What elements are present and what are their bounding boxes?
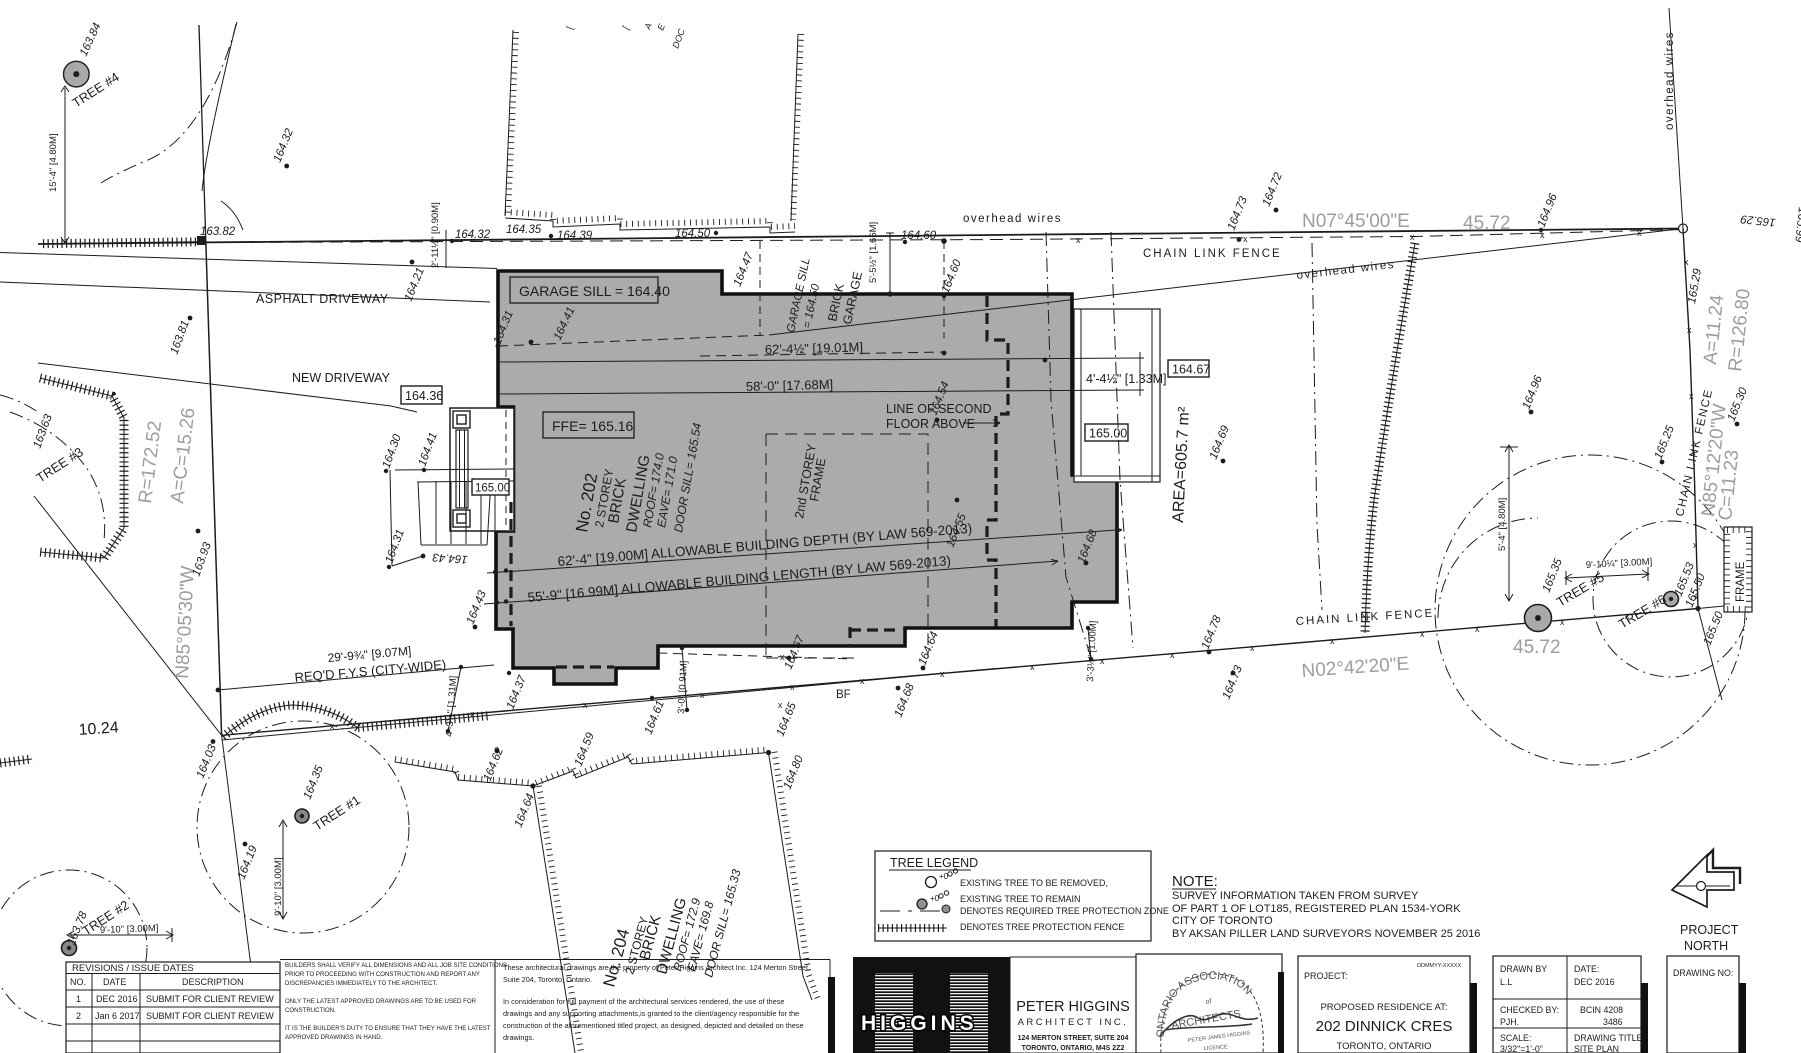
svg-text:DDMMYY-XXXXX: DDMMYY-XXXXX (1417, 963, 1461, 969)
svg-text:TREE LEGEND: TREE LEGEND (890, 856, 978, 870)
svg-text:9'-10" [3.00M]: 9'-10" [3.00M] (100, 923, 159, 936)
svg-text:DRAWING NO:: DRAWING NO: (1673, 968, 1733, 978)
svg-text:x: x (1250, 643, 1255, 653)
svg-text:45.72: 45.72 (1463, 213, 1511, 234)
svg-text:15'-4" [4.80M]: 15'-4" [4.80M] (48, 133, 59, 192)
svg-text:CHECKED BY:: CHECKED BY: (1500, 1005, 1559, 1015)
svg-text:OF PART 1 OF LOT185, REGISTERE: OF PART 1 OF LOT185, REGISTERED PLAN 153… (1172, 903, 1461, 915)
svg-text:45.72: 45.72 (1513, 637, 1561, 658)
svg-text:NO.: NO. (70, 977, 86, 987)
svg-text:164.39: 164.39 (557, 230, 593, 242)
svg-text:DEC 2016: DEC 2016 (1574, 977, 1615, 987)
svg-text:CHAIN LINK FENCE: CHAIN LINK FENCE (1143, 248, 1282, 260)
svg-text:IT IS THE BUILDER'S DUTY TO EN: IT IS THE BUILDER'S DUTY TO ENSURE THAT … (285, 1025, 491, 1032)
svg-text:NORTH: NORTH (1684, 939, 1728, 953)
svg-text:163.82: 163.82 (200, 226, 236, 238)
svg-text:164.67: 164.67 (1172, 363, 1210, 377)
svg-text:x: x (1410, 232, 1415, 242)
svg-text:164.32: 164.32 (455, 229, 491, 241)
svg-text:x: x (1693, 540, 1698, 550)
svg-text:PROJECT: PROJECT (1680, 923, 1739, 937)
svg-text:x: x (1076, 235, 1081, 245)
svg-text:164.50: 164.50 (675, 228, 711, 240)
svg-text:x: x (790, 682, 795, 692)
svg-text:CONSTRUCTION.: CONSTRUCTION. (285, 1007, 336, 1014)
svg-text:DISCREPANCIES IMMEDIATELY TO T: DISCREPANCIES IMMEDIATELY TO THE ARCHITE… (285, 980, 438, 987)
svg-text:PROPOSED RESIDENCE AT:: PROPOSED RESIDENCE AT: (1320, 1002, 1447, 1013)
svg-text:In consideration for full paym: In consideration for full payment of the… (503, 997, 785, 1006)
svg-text:x: x (1475, 624, 1480, 634)
svg-text:These architectural drawings a: These architectural drawings are the pro… (503, 963, 810, 972)
svg-text:x: x (700, 690, 705, 700)
svg-text:x: x (940, 669, 945, 679)
svg-text:3/32"=1'-0": 3/32"=1'-0" (1500, 1044, 1543, 1053)
svg-text:165.00: 165.00 (1089, 427, 1127, 441)
svg-text:FFE= 165.16: FFE= 165.16 (552, 418, 634, 434)
svg-text:EXISTING TREE TO REMAIN: EXISTING TREE TO REMAIN (960, 894, 1081, 904)
svg-text:SUBMIT FOR CLIENT REVIEW: SUBMIT FOR CLIENT REVIEW (146, 1011, 274, 1021)
svg-text:DRAWING TITLE:: DRAWING TITLE: (1574, 1033, 1645, 1043)
svg-text:x: x (583, 700, 588, 710)
svg-text:x: x (1420, 629, 1425, 639)
svg-text:FLOOR ABOVE: FLOOR ABOVE (886, 417, 975, 431)
svg-text:x: x (1637, 228, 1642, 238)
svg-text:202 DINNICK CRES: 202 DINNICK CRES (1316, 1018, 1453, 1035)
svg-text:BF: BF (836, 689, 851, 701)
svg-text:PRIOR TO PROCEEDING WITH CONST: PRIOR TO PROCEEDING WITH CONSTRUCTION AN… (285, 971, 480, 978)
svg-text:DRAWN BY: DRAWN BY (1500, 964, 1547, 974)
svg-text:EXISTING TREE TO BE REMOVED,: EXISTING TREE TO BE REMOVED, (960, 878, 1108, 888)
svg-text:x: x (1100, 656, 1105, 666)
svg-text:x: x (1687, 325, 1692, 335)
svg-text:GARAGE SILL = 164.40: GARAGE SILL = 164.40 (519, 283, 670, 299)
svg-text:164.43: 164.43 (432, 551, 469, 565)
svg-text:x: x (1330, 636, 1335, 646)
svg-text:58'-0" [17.68M]: 58'-0" [17.68M] (746, 377, 834, 394)
svg-text:165.00: 165.00 (475, 483, 510, 495)
svg-text:NOTE:: NOTE: (1172, 873, 1218, 890)
svg-text:SURVEY INFORMATION TAKEN FROM: SURVEY INFORMATION TAKEN FROM SURVEY (1172, 890, 1419, 902)
svg-text:+0: +0 (930, 894, 940, 903)
svg-text:164.36: 164.36 (405, 389, 443, 403)
svg-text:SITE PLAN: SITE PLAN (1574, 1044, 1619, 1053)
svg-text:x: x (1030, 662, 1035, 672)
svg-text:CITY OF TORONTO: CITY OF TORONTO (1172, 915, 1273, 927)
svg-text:SUBMIT FOR CLIENT REVIEW: SUBMIT FOR CLIENT REVIEW (146, 994, 274, 1004)
svg-text:HIGGINS: HIGGINS (861, 1012, 978, 1035)
svg-text:REVISIONS / ISSUE DATES: REVISIONS / ISSUE DATES (72, 963, 194, 974)
svg-text:overhead wires: overhead wires (963, 213, 1062, 225)
svg-text:Jan 6 2017: Jan 6 2017 (95, 1011, 140, 1021)
svg-text:DATE:: DATE: (1574, 964, 1599, 974)
svg-text:DESCRIPTION: DESCRIPTION (182, 977, 244, 987)
svg-text:2'-11½" [0.90M]: 2'-11½" [0.90M] (430, 202, 441, 268)
svg-text:ONLY THE LATEST APPROVED DRAWI: ONLY THE LATEST APPROVED DRAWINGS ARE TO… (285, 998, 477, 1005)
svg-text:ARCHITECT INC.: ARCHITECT INC. (1018, 1017, 1129, 1028)
svg-text:construction of the aforementi: construction of the aforementioned title… (503, 1021, 804, 1030)
svg-text:DATE: DATE (103, 977, 126, 987)
svg-text:x: x (1170, 650, 1175, 660)
svg-text:L.L: L.L (1500, 977, 1512, 987)
svg-text:PROJECT:: PROJECT: (1304, 971, 1348, 981)
svg-text:164.35: 164.35 (506, 224, 542, 236)
svg-text:overhead wires: overhead wires (1664, 31, 1676, 130)
svg-text:2: 2 (76, 1011, 81, 1021)
svg-text:PJH.: PJH. (1500, 1017, 1519, 1027)
svg-text:TORONTO, ONTARIO: TORONTO, ONTARIO (1336, 1041, 1431, 1052)
svg-text:DENOTES TREE PROTECTION FENCE: DENOTES TREE PROTECTION FENCE (960, 922, 1124, 932)
svg-text:4'-4½" [1.33M]: 4'-4½" [1.33M] (1086, 372, 1166, 386)
svg-text:5'-5½" [1.66M]: 5'-5½" [1.66M] (868, 222, 879, 283)
svg-text:SCALE:: SCALE: (1500, 1033, 1531, 1043)
svg-text:9'-10" [3.00M]: 9'-10" [3.00M] (273, 857, 284, 916)
svg-text:BUILDERS SHALL VERIFY ALL DIME: BUILDERS SHALL VERIFY ALL DIMENSIONS AND… (285, 962, 507, 969)
svg-text:x: x (1243, 234, 1248, 244)
svg-text:x: x (1689, 391, 1694, 401)
svg-text:x: x (778, 700, 783, 710)
svg-text:3486: 3486 (1603, 1017, 1623, 1027)
svg-text:ASPHALT DRIVEWAY: ASPHALT DRIVEWAY (256, 292, 389, 306)
svg-text:164.60: 164.60 (901, 230, 937, 242)
svg-text:62'-4½" [19.01M]: 62'-4½" [19.01M] (765, 339, 864, 357)
svg-text:NEW DRIVEWAY: NEW DRIVEWAY (292, 371, 391, 385)
svg-text:APPROVED DRAWINGS IN HAND.: APPROVED DRAWINGS IN HAND. (285, 1034, 383, 1041)
svg-text:x: x (1684, 257, 1689, 267)
svg-text:BY AKSAN PILLER LAND SURVEYORS: BY AKSAN PILLER LAND SURVEYORS NOVEMBER … (1172, 928, 1480, 940)
svg-text:drawings and any supporting at: drawings and any supporting attachments,… (503, 1009, 799, 1018)
svg-text:Suite 204, Toronto, Ontario.: Suite 204, Toronto, Ontario. (503, 975, 592, 984)
svg-text:FRAME: FRAME (1735, 561, 1747, 602)
svg-text:1: 1 (76, 994, 81, 1004)
svg-text:x: x (860, 676, 865, 686)
svg-text:x: x (1560, 617, 1565, 627)
svg-text:PETER HIGGINS: PETER HIGGINS (1016, 999, 1130, 1015)
svg-text:N07°45'00"E: N07°45'00"E (1302, 211, 1410, 232)
svg-text:DENOTES REQUIRED TREE PROTECTI: DENOTES REQUIRED TREE PROTECTION ZONE (960, 906, 1169, 916)
svg-text:x: x (780, 652, 785, 662)
svg-text:10.24: 10.24 (78, 719, 119, 739)
svg-text:drawings.: drawings. (503, 1033, 534, 1042)
svg-text:BCIN 4208: BCIN 4208 (1580, 1005, 1623, 1015)
svg-text:5'-4" [4.80M]: 5'-4" [4.80M] (1497, 498, 1508, 551)
svg-text:124 MERTON STREET, SUITE 204: 124 MERTON STREET, SUITE 204 (1018, 1035, 1129, 1042)
svg-text:DEC 2016: DEC 2016 (96, 994, 138, 1004)
svg-text:TORONTO, ONTARIO, M4S 2Z2: TORONTO, ONTARIO, M4S 2Z2 (1022, 1045, 1125, 1052)
svg-text:+0: +0 (939, 872, 949, 881)
